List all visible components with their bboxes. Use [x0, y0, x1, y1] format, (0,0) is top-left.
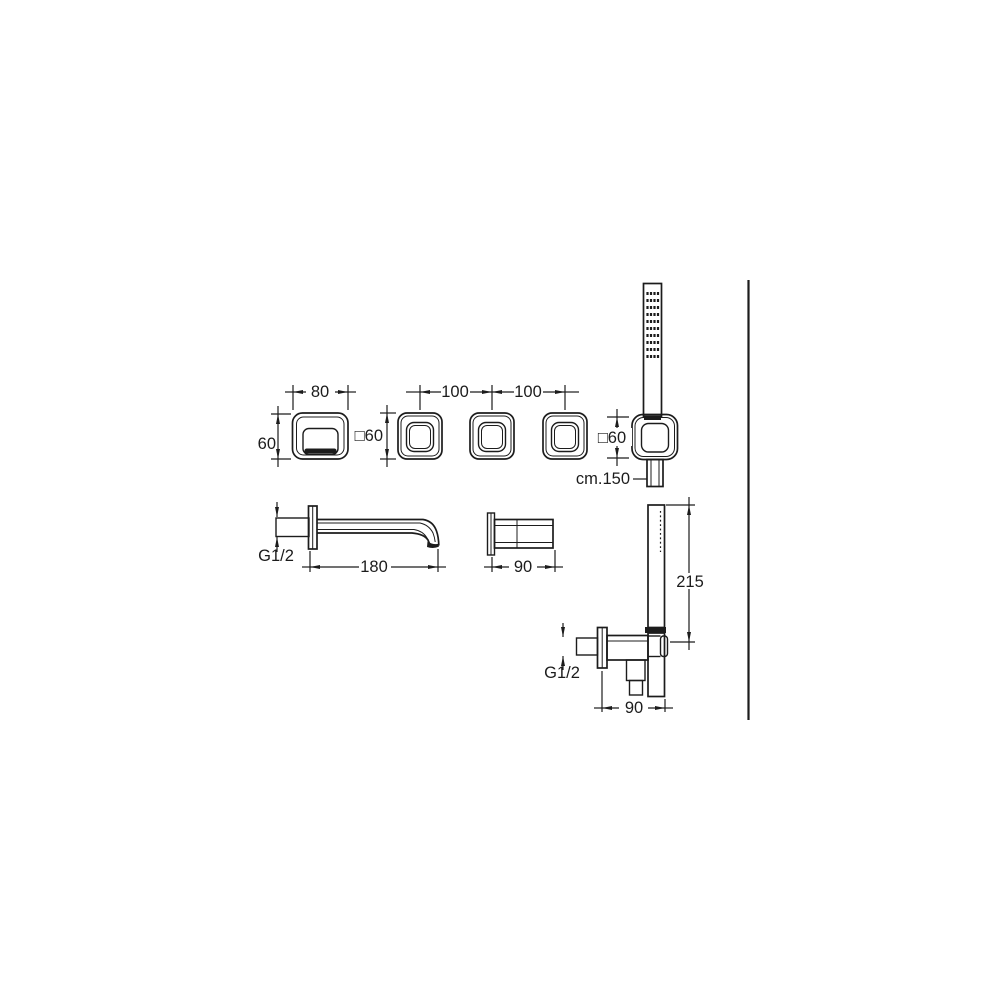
dim-handle-square-right: □60	[596, 409, 632, 466]
spout-plate-front-view	[293, 413, 349, 459]
handle-front-view-3	[543, 413, 587, 459]
dim-90-valve-label: 90	[514, 558, 532, 576]
square60-left-label: □60	[355, 427, 383, 445]
spout-thread-label: G1/2	[258, 547, 294, 565]
dim-handshower-height: 215	[666, 497, 705, 650]
dim-plate-height: 60	[258, 406, 291, 467]
square60-right-label: □60	[598, 429, 626, 447]
handle-front-view-1	[398, 413, 442, 459]
dim-handle-square-left: □60	[355, 405, 396, 467]
dim-80-label: 80	[311, 383, 329, 401]
dim-plate-width: 80	[285, 383, 356, 410]
dim-spout-length: 180	[302, 549, 446, 576]
wall-spout-side-view	[276, 506, 439, 549]
dim-180-label: 180	[360, 558, 388, 576]
spout-outlet-slot	[305, 449, 337, 454]
dim-handle-spacing: 100 100	[406, 383, 579, 410]
dim-outlet-width: 90	[594, 671, 673, 717]
hose-length-label: cm.150	[576, 470, 630, 488]
outlet-thread-callout: G1/2	[544, 623, 580, 682]
mixer-dimensional-drawing: 80 60 100 100	[0, 0, 1000, 1000]
handshower-front-view	[632, 284, 678, 487]
handle-front-view-2	[470, 413, 514, 459]
dim-215-label: 215	[676, 573, 704, 591]
dim-90-outlet-label: 90	[625, 699, 643, 717]
dim-100-right-label: 100	[514, 383, 542, 401]
dim-valve-depth: 90	[484, 550, 563, 576]
technical-drawing-canvas: 80 60 100 100	[0, 0, 1000, 1000]
outlet-thread-label: G1/2	[544, 664, 580, 682]
handshower-nozzle-pattern	[648, 292, 659, 358]
dim-100-left-label: 100	[441, 383, 469, 401]
handshower-outlet-side-view	[577, 505, 668, 697]
hose-length-callout: cm.150	[576, 470, 647, 488]
spout-tip	[427, 542, 439, 548]
dim-60-left-label: 60	[258, 435, 276, 453]
valve-body-side-view	[488, 513, 554, 555]
